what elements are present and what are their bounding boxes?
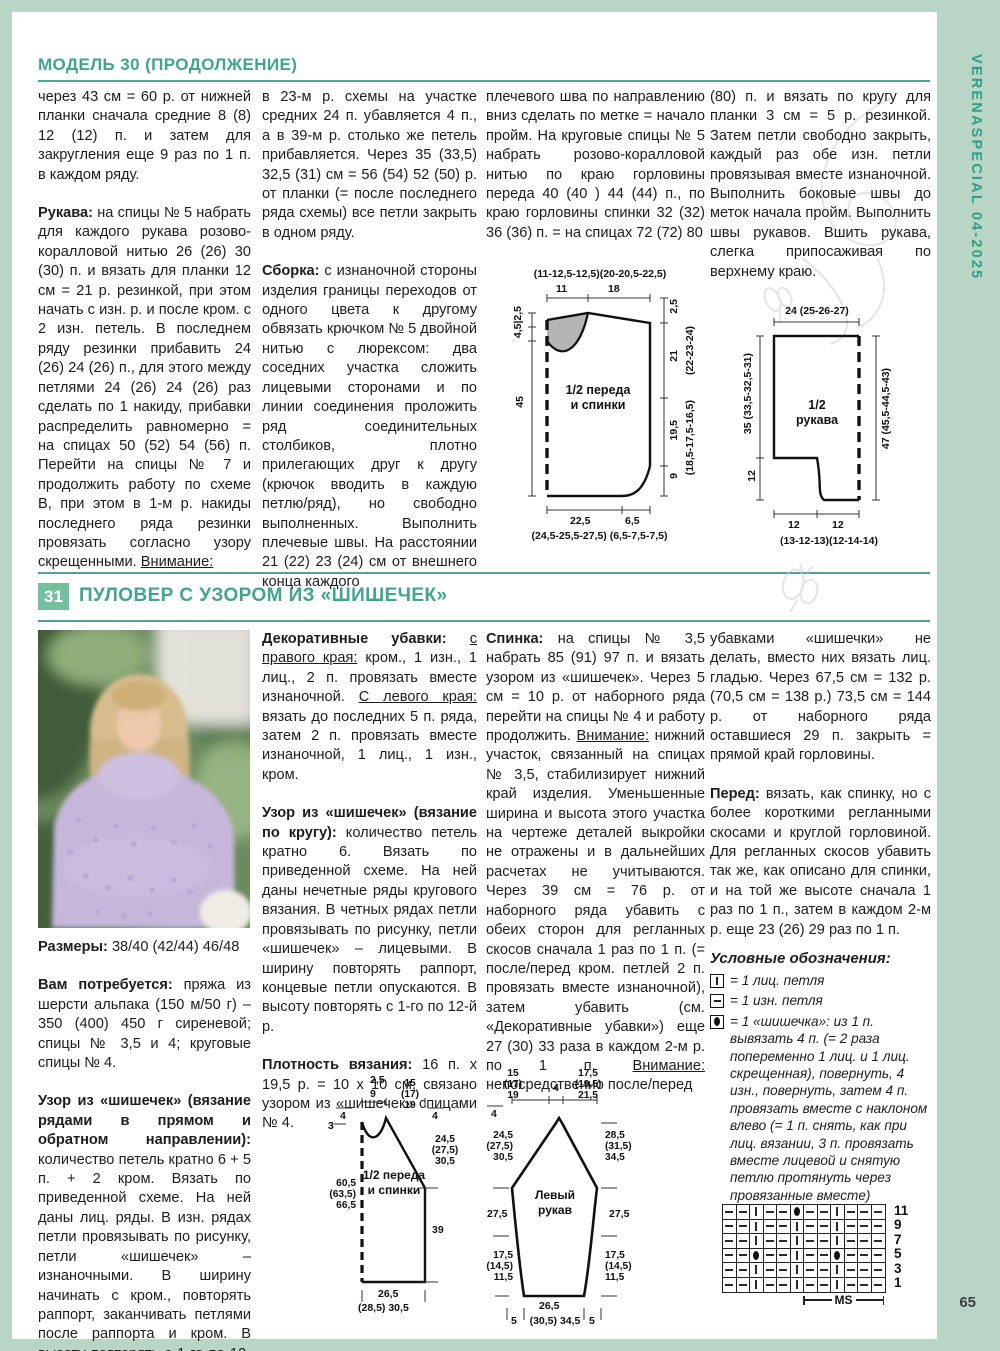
purl-stitch-icon bbox=[860, 1240, 868, 1242]
schematic-body-front-back: (11-12,5-12,5)(20-20,5-22,5) 11 18 4,5|2… bbox=[492, 268, 707, 553]
purl-stitch-icon bbox=[725, 1254, 733, 1256]
text-segment: С левого края: bbox=[359, 689, 477, 705]
chart-cell bbox=[723, 1249, 737, 1264]
text-segment: в 23-м р. схемы на участке средних 24 п.… bbox=[262, 89, 477, 241]
chart-cell bbox=[723, 1234, 737, 1249]
paragraph: убавками «шишечки» не делать, вместо них… bbox=[710, 630, 931, 766]
chart-cell bbox=[764, 1249, 778, 1264]
pattern-repeat-bracket: MS bbox=[803, 1295, 884, 1305]
purl-stitch-icon bbox=[847, 1254, 855, 1256]
paragraph: Декоративные убавки: с правого края: кро… bbox=[262, 630, 477, 785]
chart-cell bbox=[777, 1205, 791, 1220]
chart-cell bbox=[750, 1234, 764, 1249]
knit-stitch-icon bbox=[755, 1236, 757, 1245]
measure-label: 17,5 (14,5) 11,5 bbox=[605, 1250, 647, 1283]
paragraph: плечевого шва по направлению вниз сделат… bbox=[486, 88, 705, 243]
measure-label: (22-23-24) bbox=[684, 326, 696, 375]
chart-row-labels: 1197531 bbox=[894, 1203, 908, 1290]
measure-label: 21 bbox=[668, 350, 680, 362]
purl-stitch-icon bbox=[779, 1211, 787, 1213]
model31-column-4: убавками «шишечки» не делать, вместо них… bbox=[710, 630, 931, 940]
legend-title: Условные обозначения: bbox=[710, 950, 934, 967]
chart-cell bbox=[737, 1220, 751, 1235]
chart-cell bbox=[791, 1263, 805, 1278]
knit-stitch-icon bbox=[755, 1222, 757, 1231]
purl-stitch-icon bbox=[860, 1269, 868, 1271]
purl-stitch-icon bbox=[806, 1211, 814, 1213]
chart-cell bbox=[872, 1263, 886, 1278]
page-number: 65 bbox=[959, 1294, 976, 1311]
chart-row-number: 11 bbox=[894, 1203, 908, 1218]
measure-label: 60,5 (63,5) 66,5 bbox=[326, 1178, 356, 1211]
purl-stitch-icon bbox=[874, 1240, 882, 1242]
purl-stitch-icon bbox=[725, 1269, 733, 1271]
schematic-title: 1/2 рукава bbox=[782, 398, 852, 428]
purl-stitch-icon bbox=[806, 1269, 814, 1271]
knit-stitch-icon bbox=[836, 1280, 838, 1289]
chart-cell bbox=[872, 1278, 886, 1293]
chart-cell bbox=[750, 1278, 764, 1293]
chart-cell bbox=[777, 1263, 791, 1278]
purl-stitch-icon bbox=[847, 1240, 855, 1242]
text-segment: Узор из «шишечек» (вязание рядами в прям… bbox=[38, 1093, 251, 1148]
text-segment: Рукава: bbox=[38, 205, 97, 221]
purl-stitch-icon bbox=[725, 1284, 733, 1286]
text-segment: Сборка: bbox=[262, 263, 324, 279]
measure-label: 22,5 bbox=[570, 515, 590, 527]
measure-label: 6,5 bbox=[625, 515, 640, 527]
purl-stitch-icon bbox=[739, 1269, 747, 1271]
text-segment: плечевого шва по направлению вниз сделат… bbox=[486, 89, 705, 241]
chart-cell bbox=[750, 1205, 764, 1220]
text-segment: 38/40 (42/44) 46/48 bbox=[112, 939, 239, 955]
paragraph: Рукава: на спицы № 5 набрать для каждого… bbox=[38, 204, 251, 573]
measure-label: 4 bbox=[491, 1108, 497, 1120]
measure-label: (13-12-13)(12-14-14) bbox=[744, 535, 914, 547]
chart-cell bbox=[872, 1234, 886, 1249]
measure-label: 11 bbox=[556, 283, 567, 295]
paragraph: в 23-м р. схемы на участке средних 24 п.… bbox=[262, 88, 477, 243]
measure-label: 39 bbox=[432, 1224, 444, 1236]
text-segment: Внимание: bbox=[577, 728, 649, 744]
knit-stitch-icon bbox=[836, 1265, 838, 1274]
purl-stitch-icon bbox=[860, 1211, 868, 1213]
chart-cell bbox=[818, 1263, 832, 1278]
chart-cell bbox=[858, 1278, 872, 1293]
purl-stitch-icon bbox=[739, 1240, 747, 1242]
text-segment: (80) п. и вязать по кругу для планки 3 с… bbox=[710, 89, 931, 280]
chart-cell bbox=[804, 1234, 818, 1249]
legend-item-knit: = 1 лиц. петля bbox=[710, 972, 934, 989]
header-rule bbox=[38, 80, 930, 82]
schematic-sleeve: 24 (25-26-27) 35 (33,5-32,5-31) 12 47 (4… bbox=[744, 298, 936, 560]
measure-label: 24,5 (27,5) 30,5 bbox=[426, 1134, 464, 1167]
measure-label: 27,5 bbox=[487, 1208, 507, 1220]
text-segment: через 43 см = 60 р. от нижней планки сна… bbox=[38, 89, 251, 183]
purl-stitch-icon bbox=[847, 1269, 855, 1271]
purl-stitch-icon bbox=[725, 1240, 733, 1242]
measure-label: 12 bbox=[746, 470, 758, 482]
chart-cell bbox=[764, 1234, 778, 1249]
purl-stitch-icon bbox=[874, 1284, 882, 1286]
chart-cell bbox=[777, 1220, 791, 1235]
chart-cell bbox=[723, 1205, 737, 1220]
chart-cell bbox=[764, 1205, 778, 1220]
model31-column-2: Декоративные убавки: с правого края: кро… bbox=[262, 630, 477, 1134]
purl-stitch-icon bbox=[710, 994, 724, 1008]
paragraph: Сборка: с изнаночной стороны изделия гра… bbox=[262, 262, 477, 592]
schematic-front-back-31: 2,5 9 15 (17) 19 4 3 60,5 (63,5) 66,5 4 … bbox=[326, 1072, 490, 1334]
repeat-label: MS bbox=[835, 1295, 853, 1305]
purl-stitch-icon bbox=[820, 1269, 828, 1271]
knit-stitch-icon bbox=[796, 1265, 798, 1274]
chart-cell bbox=[845, 1234, 859, 1249]
chart-cell bbox=[777, 1234, 791, 1249]
purl-stitch-icon bbox=[739, 1254, 747, 1256]
purl-stitch-icon bbox=[725, 1211, 733, 1213]
chart-cell bbox=[777, 1249, 791, 1264]
chart-cell bbox=[818, 1249, 832, 1264]
measure-label: 4 bbox=[432, 1110, 438, 1122]
chart-row-number: 3 bbox=[894, 1261, 908, 1276]
magazine-page: МОДЕЛЬ 30 (ПРОДОЛЖЕНИЕ) через 43 см = 60… bbox=[0, 0, 1000, 1351]
text-segment: Декоративные убавки: bbox=[262, 631, 470, 647]
photo-illustration bbox=[38, 630, 250, 928]
schematic-left-sleeve: 15 (17) 19 4 17,5 (19,5) 21,5 4 24,5 (27… bbox=[483, 1068, 693, 1346]
measure-label: 2,5 bbox=[370, 1074, 385, 1086]
measure-label: 9 bbox=[370, 1088, 376, 1100]
chart-cell bbox=[723, 1278, 737, 1293]
bobble-stitch-icon bbox=[710, 1015, 724, 1029]
purl-stitch-icon bbox=[860, 1284, 868, 1286]
magazine-spine-title: VERENASPECIAL 04-2025 bbox=[968, 54, 984, 280]
purl-stitch-icon bbox=[766, 1284, 774, 1286]
measure-label: 4 bbox=[553, 1082, 559, 1094]
knit-stitch-icon bbox=[836, 1222, 838, 1231]
purl-stitch-icon bbox=[874, 1254, 882, 1256]
measure-label: 12 bbox=[832, 519, 844, 531]
purl-stitch-icon bbox=[779, 1240, 787, 1242]
purl-stitch-icon bbox=[820, 1240, 828, 1242]
chart-cell bbox=[791, 1220, 805, 1235]
chart-cell bbox=[791, 1278, 805, 1293]
paragraph: Перед: вязать, как спинку, но с более ко… bbox=[710, 785, 931, 940]
knit-stitch-icon bbox=[796, 1222, 798, 1231]
measure-label: 26,5 bbox=[378, 1288, 398, 1300]
measure-label: 24,5 (27,5) 30,5 bbox=[483, 1130, 513, 1163]
model31-column-1: Размеры: 38/40 (42/44) 46/48Вам потребуе… bbox=[38, 938, 251, 1351]
chart-cell bbox=[845, 1278, 859, 1293]
text-segment: Внимание: bbox=[141, 554, 213, 570]
purl-stitch-icon bbox=[806, 1240, 814, 1242]
chart-cell bbox=[858, 1205, 872, 1220]
chart-cell bbox=[764, 1263, 778, 1278]
chart-cell bbox=[845, 1263, 859, 1278]
chart-cell bbox=[750, 1220, 764, 1235]
chart-cell bbox=[791, 1234, 805, 1249]
chart-cell bbox=[818, 1205, 832, 1220]
purl-stitch-icon bbox=[766, 1240, 774, 1242]
chart-row-number: 5 bbox=[894, 1247, 908, 1262]
measure-label: 15 (17) 19 bbox=[495, 1068, 531, 1101]
chart-cell bbox=[764, 1278, 778, 1293]
chart-cell bbox=[791, 1249, 805, 1264]
measure-label: 47 (45,5-44,5-43) bbox=[880, 368, 892, 449]
schematic-title: 1/2 переда и спинки bbox=[358, 1168, 430, 1198]
text-segment: на спицы № 5 набрать для каждого рукава … bbox=[38, 205, 251, 570]
purl-stitch-icon bbox=[739, 1211, 747, 1213]
purl-stitch-icon bbox=[739, 1225, 747, 1227]
legend-text: = 1 изн. петля bbox=[730, 992, 823, 1009]
chart-grid bbox=[722, 1204, 886, 1293]
chart-row-number: 7 bbox=[894, 1232, 908, 1247]
section-header-model30: МОДЕЛЬ 30 (ПРОДОЛЖЕНИЕ) bbox=[38, 55, 297, 75]
knit-stitch-icon bbox=[755, 1207, 757, 1216]
chart-cell bbox=[723, 1263, 737, 1278]
chart-cell bbox=[858, 1234, 872, 1249]
model-photo bbox=[38, 630, 250, 928]
legend-item-purl: = 1 изн. петля bbox=[710, 992, 934, 1009]
measure-label: 3 bbox=[328, 1120, 334, 1132]
knit-stitch-icon bbox=[755, 1280, 757, 1289]
chart-cell bbox=[791, 1205, 805, 1220]
measure-label: 15 (17) 19 bbox=[390, 1078, 430, 1111]
measure-label: 17,5 (14,5) 11,5 bbox=[483, 1250, 513, 1283]
chart-cell bbox=[831, 1278, 845, 1293]
chart-cell bbox=[872, 1249, 886, 1264]
purl-stitch-icon bbox=[860, 1225, 868, 1227]
model31-column-3: Спинка: на спицы № 3,5 набрать 85 (91) 9… bbox=[486, 630, 705, 1096]
chart-cell bbox=[818, 1220, 832, 1235]
purl-stitch-icon bbox=[874, 1269, 882, 1271]
purl-stitch-icon bbox=[820, 1211, 828, 1213]
chart-cell bbox=[845, 1205, 859, 1220]
measure-label: 4,5|2,5 bbox=[512, 306, 524, 338]
model-number-badge: 31 bbox=[38, 583, 69, 610]
paragraph: (80) п. и вязать по кругу для планки 3 с… bbox=[710, 88, 931, 282]
schematic-drawing bbox=[483, 1068, 693, 1346]
chart-cell bbox=[858, 1249, 872, 1264]
text-segment: нижний участок, связанный на спицах № 3,… bbox=[486, 728, 705, 1074]
chart-cell bbox=[737, 1278, 751, 1293]
paragraph: Вам потребуется: пряжа из шерсти альпака… bbox=[38, 976, 251, 1073]
measure-label: 35 (33,5-32,5-31) bbox=[742, 353, 754, 434]
model30-column-1: через 43 см = 60 р. от нижней планки сна… bbox=[38, 88, 251, 573]
chart-cell bbox=[845, 1249, 859, 1264]
purl-stitch-icon bbox=[820, 1254, 828, 1256]
chart-cell bbox=[804, 1249, 818, 1264]
measure-label: 18 bbox=[608, 283, 620, 295]
text-segment: Размеры: bbox=[38, 939, 112, 955]
chart-cell bbox=[831, 1263, 845, 1278]
purl-stitch-icon bbox=[847, 1211, 855, 1213]
text-segment: Плотность вязания: bbox=[262, 1057, 422, 1073]
knit-stitch-icon bbox=[796, 1280, 798, 1289]
chart-cell bbox=[737, 1263, 751, 1278]
text-segment: вязать до последних 5 п. ряда, затем 2 п… bbox=[262, 709, 477, 783]
purl-stitch-icon bbox=[766, 1269, 774, 1271]
chart-cell bbox=[831, 1234, 845, 1249]
measure-label: 5 bbox=[589, 1315, 595, 1327]
text-segment: вязать, как спинку, но с более короткими… bbox=[710, 786, 931, 938]
purl-stitch-icon bbox=[739, 1284, 747, 1286]
butterfly-ornament bbox=[765, 560, 835, 626]
text-segment: убавками «шишечки» не делать, вместо них… bbox=[710, 631, 931, 763]
purl-stitch-icon bbox=[847, 1225, 855, 1227]
measure-label: 17,5 (19,5) 21,5 bbox=[567, 1068, 609, 1101]
measure-label: (18,5-17,5-16,5) bbox=[684, 400, 696, 475]
measure-label: 26,5 bbox=[539, 1300, 559, 1312]
purl-stitch-icon bbox=[779, 1254, 787, 1256]
chart-cell bbox=[804, 1278, 818, 1293]
purl-stitch-icon bbox=[820, 1225, 828, 1227]
knit-stitch-icon bbox=[836, 1207, 838, 1216]
paragraph: Размеры: 38/40 (42/44) 46/48 bbox=[38, 938, 251, 957]
paragraph: через 43 см = 60 р. от нижней планки сна… bbox=[38, 88, 251, 185]
purl-stitch-icon bbox=[766, 1211, 774, 1213]
purl-stitch-icon bbox=[725, 1225, 733, 1227]
chart-cell bbox=[845, 1220, 859, 1235]
purl-stitch-icon bbox=[806, 1284, 814, 1286]
text-segment: количество петель кратно 6 + 5 п. + 2 кр… bbox=[38, 1152, 251, 1351]
chart-cell bbox=[804, 1263, 818, 1278]
measure-label: 45 bbox=[514, 396, 526, 408]
knit-stitch-icon bbox=[710, 974, 724, 988]
chart-row-number: 1 bbox=[894, 1276, 908, 1291]
bobble-stitch-icon bbox=[794, 1207, 800, 1216]
chart-cell bbox=[818, 1234, 832, 1249]
knit-stitch-icon bbox=[836, 1236, 838, 1245]
chart-cell bbox=[737, 1234, 751, 1249]
measure-label: 2,5 bbox=[668, 299, 680, 314]
chart-cell bbox=[777, 1278, 791, 1293]
bobble-stitch-icon bbox=[753, 1251, 759, 1260]
chart-cell bbox=[750, 1263, 764, 1278]
purl-stitch-icon bbox=[779, 1284, 787, 1286]
legend-text: = 1 лиц. петля bbox=[730, 972, 824, 989]
text-segment: количество петель кратно 6. Вязать по пр… bbox=[262, 825, 477, 1035]
purl-stitch-icon bbox=[806, 1254, 814, 1256]
chart-cell bbox=[750, 1249, 764, 1264]
measure-label: 27,5 bbox=[609, 1208, 629, 1220]
chart-cell bbox=[737, 1249, 751, 1264]
measure-label: (11-12,5-12,5)(20-20,5-22,5) bbox=[510, 268, 690, 280]
measure-label: (30,5) 34,5 bbox=[529, 1315, 581, 1327]
chart-cell bbox=[858, 1220, 872, 1235]
bobble-stitch-icon bbox=[834, 1251, 840, 1260]
chart-cell bbox=[737, 1205, 751, 1220]
schematic-title: 1/2 переда и спинки bbox=[554, 383, 642, 413]
symbol-legend: Условные обозначения: = 1 лиц. петля = 1… bbox=[710, 950, 934, 1207]
schematic-title: Левый рукав bbox=[525, 1188, 585, 1218]
knitting-chart: 1197531 MS bbox=[710, 1194, 938, 1344]
purl-stitch-icon bbox=[779, 1225, 787, 1227]
legend-text: = 1 «шишечка»: из 1 п. вывязать 4 п. (= … bbox=[730, 1013, 934, 1204]
measure-label: 24 (25-26-27) bbox=[772, 305, 862, 317]
text-segment: Спинка: bbox=[486, 631, 558, 647]
paragraph: Узор из «шишечек» (вязание рядами в прям… bbox=[38, 1092, 251, 1351]
chart-cell bbox=[831, 1220, 845, 1235]
purl-stitch-icon bbox=[806, 1225, 814, 1227]
measure-label: 12 bbox=[788, 519, 800, 531]
text-segment: Перед: bbox=[710, 786, 766, 802]
measure-label: 5 bbox=[511, 1315, 517, 1327]
measure-label: 4 bbox=[340, 1110, 346, 1122]
paragraph: Спинка: на спицы № 3,5 набрать 85 (91) 9… bbox=[486, 630, 705, 1096]
purl-stitch-icon bbox=[874, 1211, 882, 1213]
chart-cell bbox=[764, 1220, 778, 1235]
text-segment: с изнаночной стороны изделия границы пер… bbox=[262, 263, 477, 590]
measure-label: 9 bbox=[668, 473, 680, 479]
knit-stitch-icon bbox=[796, 1236, 798, 1245]
text-segment: Вам потребуется: bbox=[38, 977, 184, 993]
chart-cell bbox=[831, 1249, 845, 1264]
model30-column-2: в 23-м р. схемы на участке средних 24 п.… bbox=[262, 88, 477, 592]
purl-stitch-icon bbox=[847, 1284, 855, 1286]
knit-stitch-icon bbox=[755, 1265, 757, 1274]
measure-label: 28,5 (31,5) 34,5 bbox=[605, 1130, 647, 1163]
measure-label: (28,5) 30,5 bbox=[358, 1302, 409, 1314]
chart-cell bbox=[872, 1220, 886, 1235]
model30-column-4: (80) п. и вязать по кругу для планки 3 с… bbox=[710, 88, 931, 282]
measure-label: (24,5-25,5-27,5) (6,5-7,5-7,5) bbox=[492, 530, 707, 542]
purl-stitch-icon bbox=[874, 1225, 882, 1227]
model30-column-3: плечевого шва по направлению вниз сделат… bbox=[486, 88, 705, 243]
chart-cell bbox=[804, 1205, 818, 1220]
purl-stitch-icon bbox=[766, 1254, 774, 1256]
measure-label: 19,5 bbox=[668, 420, 680, 440]
chart-cell bbox=[818, 1278, 832, 1293]
legend-item-bobble: = 1 «шишечка»: из 1 п. вывязать 4 п. (= … bbox=[710, 1013, 934, 1204]
paragraph: Узор из «шишечек» (вязание по кругу): ко… bbox=[262, 804, 477, 1037]
chart-cell bbox=[872, 1205, 886, 1220]
purl-stitch-icon bbox=[779, 1269, 787, 1271]
purl-stitch-icon bbox=[766, 1225, 774, 1227]
purl-stitch-icon bbox=[820, 1284, 828, 1286]
chart-cell bbox=[804, 1220, 818, 1235]
chart-cell bbox=[831, 1205, 845, 1220]
chart-row-number: 9 bbox=[894, 1218, 908, 1233]
chart-cell bbox=[858, 1263, 872, 1278]
knit-stitch-icon bbox=[796, 1251, 798, 1260]
purl-stitch-icon bbox=[860, 1254, 868, 1256]
chart-cell bbox=[723, 1220, 737, 1235]
